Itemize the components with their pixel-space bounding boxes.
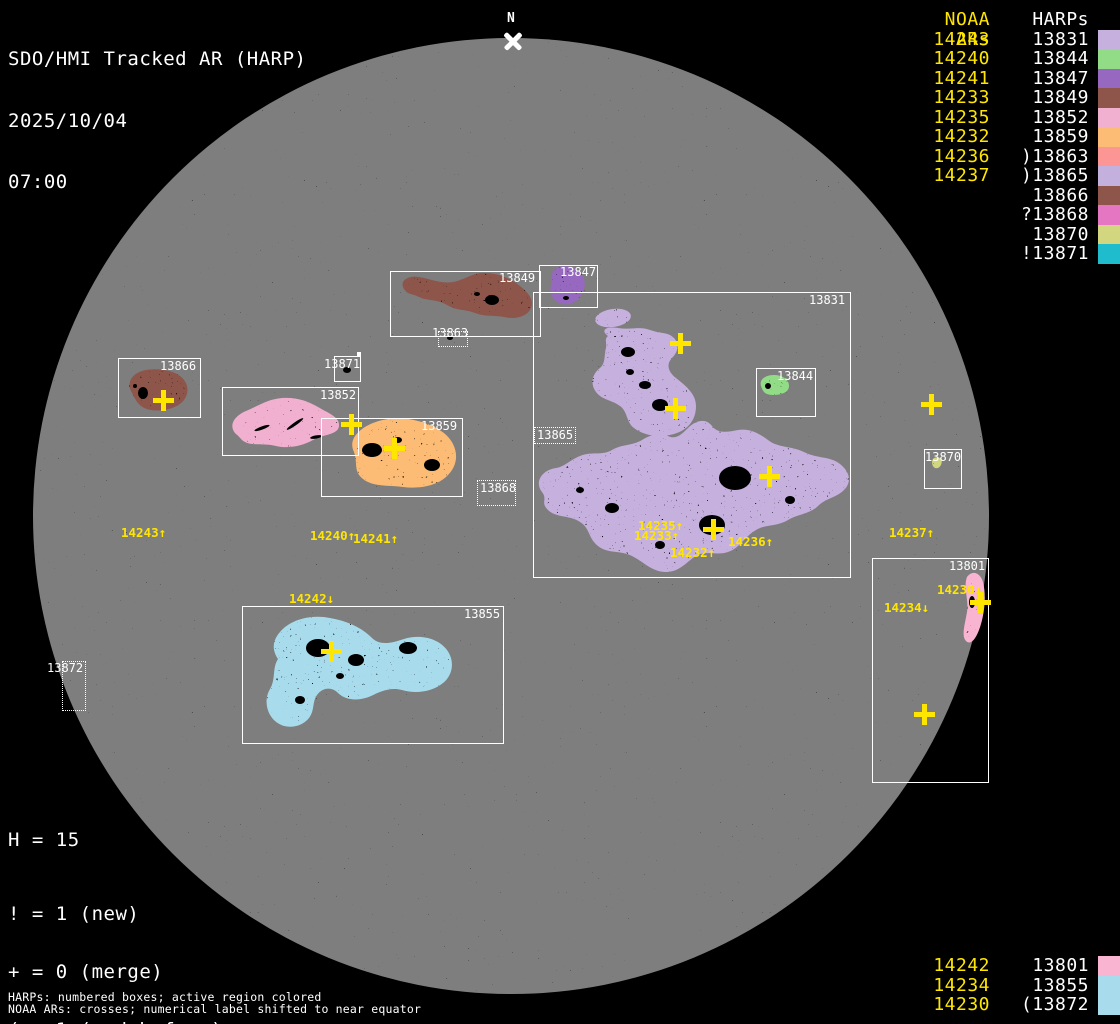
list-row: 13866 (902, 186, 1120, 206)
list-row: 1423513852 (902, 108, 1120, 128)
harp-label-13852: 13852 (320, 389, 356, 402)
color-swatch (1098, 30, 1120, 50)
color-swatch (1098, 244, 1120, 264)
noaa-number: 14235 (902, 108, 990, 128)
harp-number: 13844 (990, 49, 1089, 69)
harp-label-13849: 13849 (499, 272, 535, 285)
noaa-cross (384, 438, 405, 459)
noaa-cross (759, 466, 780, 487)
noaa-cross (321, 641, 342, 662)
noaa-number: 14242 (928, 956, 990, 976)
north-x-icon (503, 31, 523, 51)
page-title: SDO/HMI Tracked AR (HARP) (8, 49, 306, 70)
observation-date: 2025/10/04 (8, 111, 306, 132)
observation-time: 07:00 (8, 172, 306, 193)
noaa-number: 14230 (928, 995, 990, 1015)
noaa-number: 14237 (902, 166, 990, 186)
harp-label-13866: 13866 (160, 360, 196, 373)
noaa-cross (914, 704, 935, 725)
harp-count: H = 15 (8, 829, 80, 851)
color-swatch (1098, 108, 1120, 128)
harp-number: )13865 (990, 166, 1089, 186)
noaa-cross (665, 398, 686, 419)
noaa-label-14242: 14242↓ (289, 592, 334, 605)
list-row: 14237)13865 (902, 166, 1120, 186)
harps-header: HARPs (990, 10, 1089, 30)
noaa-number: 14241 (902, 69, 990, 89)
harp-box-13855 (242, 606, 504, 744)
harp-label-13871: 13871 (324, 358, 360, 371)
color-swatch (1098, 186, 1120, 206)
harp-box-13831 (533, 292, 851, 578)
list-row: 1424313831 (902, 30, 1120, 50)
noaa-number: 14236 (902, 147, 990, 167)
harp-number: 13847 (990, 69, 1089, 89)
color-swatch (1098, 49, 1120, 69)
color-swatch (1098, 995, 1120, 1015)
noaa-number: 14243 (902, 30, 990, 50)
page-title-block: SDO/HMI Tracked AR (HARP) 2025/10/04 07:… (8, 8, 306, 234)
harp-number: 13855 (990, 976, 1089, 996)
color-swatch (1098, 69, 1120, 89)
list-row: !13871 (902, 244, 1120, 264)
harp-label-13831: 13831 (809, 294, 845, 307)
harp-label-13865: 13865 (534, 427, 576, 444)
list-row: 14236)13863 (902, 147, 1120, 167)
legend-line: + = 0 (merge) (8, 963, 235, 982)
north-label: N (507, 11, 515, 26)
harp-label-13870: 13870 (925, 451, 961, 464)
harp-number: (13872 (990, 995, 1089, 1015)
list-row: 1424213801 (928, 956, 1120, 976)
harp-label-13863: 13863 (432, 327, 468, 340)
color-swatch (1098, 88, 1120, 108)
harp-label-13868: 13868 (480, 482, 516, 495)
harp-label-13855: 13855 (464, 608, 500, 621)
harp-label-13844: 13844 (777, 370, 813, 383)
noaa-cross (341, 414, 362, 435)
color-swatch (1098, 225, 1120, 245)
color-swatch (1098, 147, 1120, 167)
harp-number: 13870 (990, 225, 1089, 245)
color-swatch (1098, 205, 1120, 225)
list-row: 1423313849 (902, 88, 1120, 108)
harp-number: 13801 (990, 956, 1089, 976)
noaa-label-14230: 14230↓ (937, 583, 982, 596)
harp-number: ?13868 (990, 205, 1089, 225)
harp-number: 13859 (990, 127, 1089, 147)
color-swatch (1098, 956, 1120, 976)
list-header: NOAA ARs HARPs (902, 10, 1120, 30)
harp-number: 13852 (990, 108, 1089, 128)
noaa-label-14236: 14236↑ (728, 535, 773, 548)
noaa-label-14240: 14240↑ (310, 529, 355, 542)
noaa-harp-list: NOAA ARs HARPs 1424313831 1424013844 142… (902, 10, 1120, 264)
noaa-label-14234: 14234↓ (884, 601, 929, 614)
color-swatch (1098, 127, 1120, 147)
noaa-label-14233: 14233↑ (634, 529, 679, 542)
color-swatch (1098, 976, 1120, 996)
harp-number: 13866 (990, 186, 1089, 206)
noaa-cross (670, 333, 691, 354)
noaa-number: 14233 (902, 88, 990, 108)
new-region-dot (357, 352, 361, 356)
footnote-noaa: NOAA ARs: crosses; numerical label shift… (8, 1002, 421, 1016)
list-row: 1423213859 (902, 127, 1120, 147)
harp-label-13847: 13847 (560, 266, 596, 279)
harp-label-13801: 13801 (949, 560, 985, 573)
harp-label-13872: 13872 (47, 662, 83, 675)
noaa-label-14243: 14243↑ (121, 526, 166, 539)
noaa-label-14232: 14232↑ (670, 546, 715, 559)
harp-label-13859: 13859 (421, 420, 457, 433)
noaa-cross (703, 519, 724, 540)
noaa-number: 14234 (928, 976, 990, 996)
list-row: 1424113847 (902, 69, 1120, 89)
list-row: 1424013844 (902, 49, 1120, 69)
noaa-number: 14240 (902, 49, 990, 69)
bottom-right-list: 1424213801 1423413855 14230(13872 (928, 956, 1120, 1015)
harp-number: 13831 (990, 30, 1089, 50)
noaa-number: 14232 (902, 127, 990, 147)
list-row: 14230(13872 (928, 995, 1120, 1015)
legend-line: ! = 1 (new) (8, 905, 235, 924)
harp-tracking-view: SDO/HMI Tracked AR (HARP) 2025/10/04 07:… (0, 0, 1120, 1024)
harp-number: !13871 (990, 244, 1089, 264)
list-row: 1423413855 (928, 976, 1120, 996)
harp-number: 13849 (990, 88, 1089, 108)
list-row: ?13868 (902, 205, 1120, 225)
noaa-label-14237: 14237↑ (889, 526, 934, 539)
noaa-cross (153, 390, 174, 411)
harp-number: )13863 (990, 147, 1089, 167)
noaa-label-14241: 14241↑ (353, 532, 398, 545)
noaa-cross (921, 394, 942, 415)
color-swatch (1098, 166, 1120, 186)
list-row: 13870 (902, 225, 1120, 245)
